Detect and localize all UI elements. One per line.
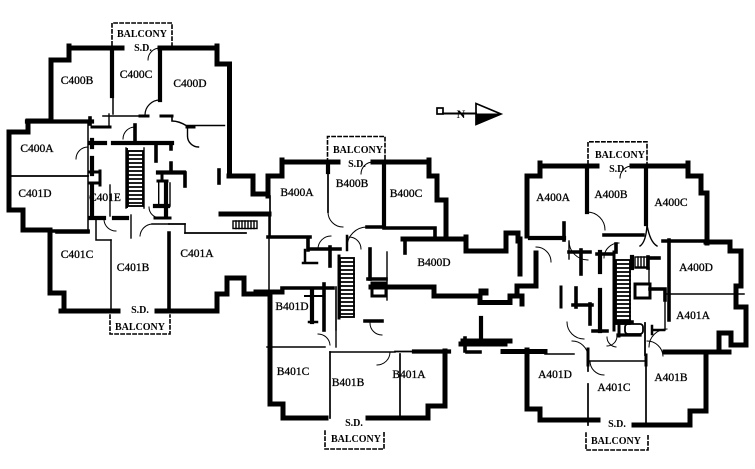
- svg-text:BALCONY: BALCONY: [331, 434, 382, 445]
- svg-text:A401B: A401B: [654, 372, 688, 384]
- svg-text:BALCONY: BALCONY: [333, 145, 384, 156]
- svg-text:S.D.: S.D.: [609, 164, 627, 175]
- svg-text:B400B: B400B: [336, 178, 369, 190]
- svg-text:S.D.: S.D.: [345, 418, 363, 429]
- svg-text:BALCONY: BALCONY: [591, 436, 642, 447]
- svg-text:C401B: C401B: [117, 262, 150, 274]
- svg-text:C400D: C400D: [173, 78, 206, 90]
- svg-text:C401D: C401D: [18, 188, 51, 200]
- svg-text:B401A: B401A: [392, 369, 426, 381]
- svg-text:S.D.: S.D.: [134, 43, 152, 54]
- svg-text:N: N: [457, 107, 466, 121]
- svg-text:S.D.: S.D.: [608, 419, 626, 430]
- svg-text:BALCONY: BALCONY: [115, 322, 166, 333]
- svg-text:S.D.: S.D.: [348, 159, 366, 170]
- svg-text:B400D: B400D: [417, 257, 450, 269]
- svg-text:B401D: B401D: [275, 301, 308, 313]
- svg-text:A401C: A401C: [597, 382, 631, 394]
- svg-text:A400A: A400A: [536, 192, 571, 204]
- svg-text:C400B: C400B: [61, 75, 94, 87]
- svg-text:B401C: B401C: [277, 366, 310, 378]
- svg-text:C400C: C400C: [120, 69, 153, 81]
- svg-text:A400D: A400D: [679, 262, 713, 274]
- svg-text:A401D: A401D: [538, 369, 572, 381]
- svg-text:S.D.: S.D.: [131, 305, 149, 316]
- svg-text:A400C: A400C: [654, 197, 688, 209]
- svg-text:C401A: C401A: [180, 248, 214, 260]
- svg-text:C401C: C401C: [61, 249, 94, 261]
- svg-text:A401A: A401A: [676, 310, 711, 322]
- svg-text:BALCONY: BALCONY: [117, 29, 168, 40]
- svg-text:B400C: B400C: [390, 188, 423, 200]
- svg-text:BALCONY: BALCONY: [595, 150, 646, 161]
- svg-text:B400A: B400A: [280, 187, 314, 199]
- svg-text:A400B: A400B: [594, 189, 628, 201]
- svg-text:C400A: C400A: [20, 143, 54, 155]
- svg-text:B401B: B401B: [332, 377, 365, 389]
